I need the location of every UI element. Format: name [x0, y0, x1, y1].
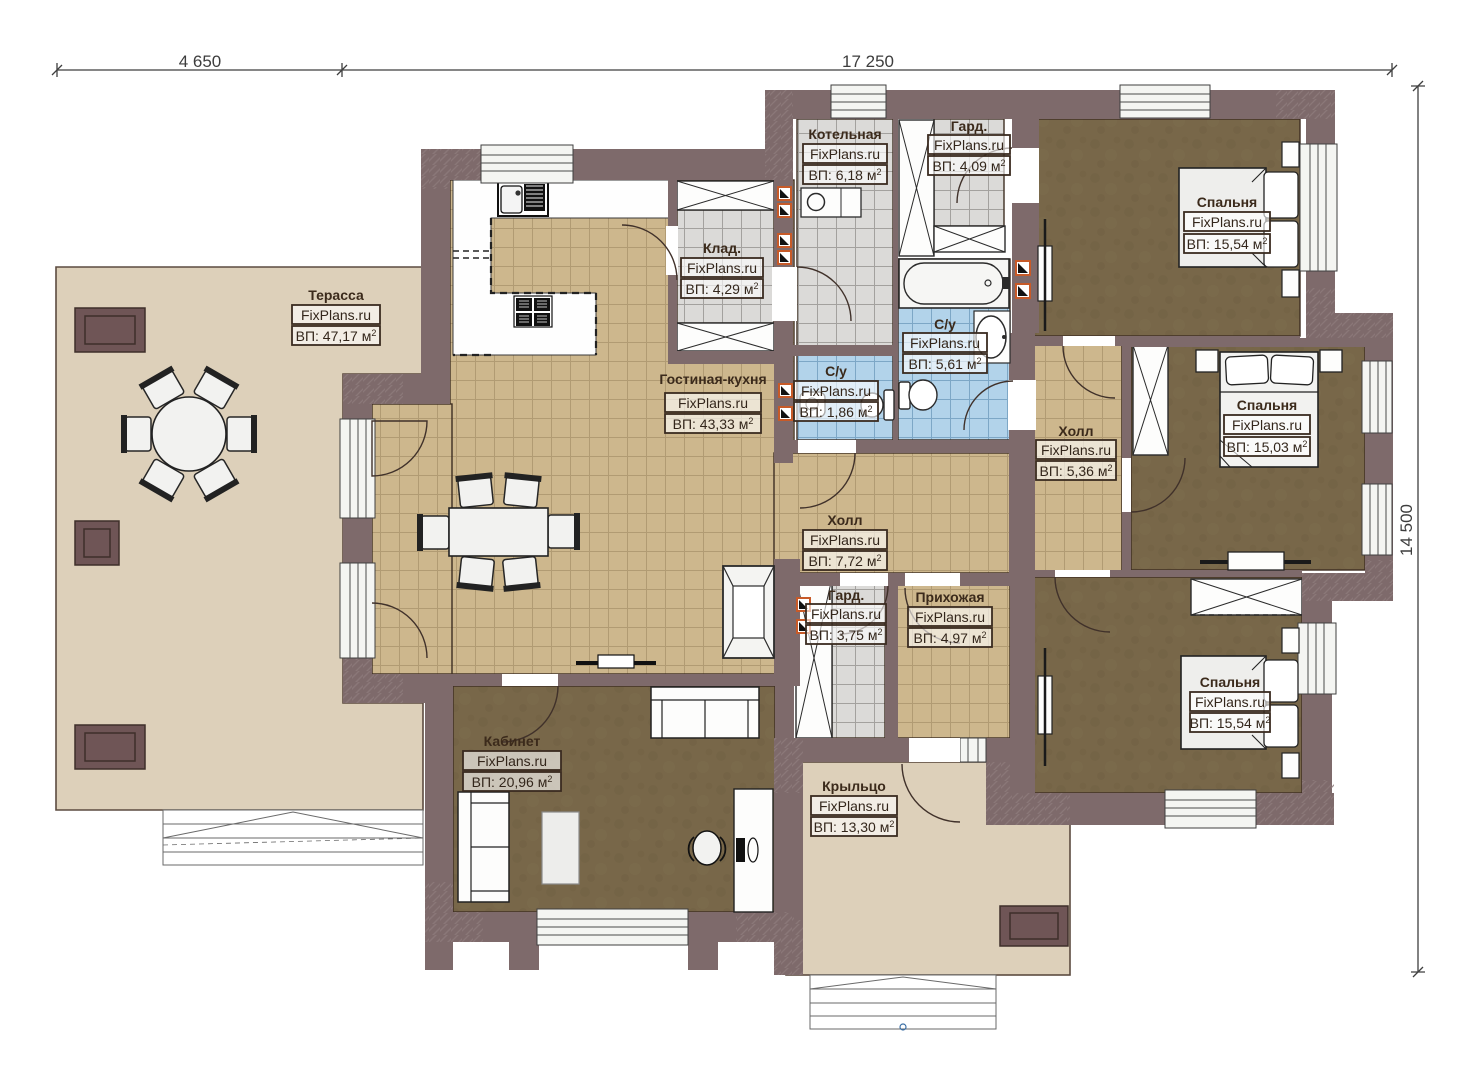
svg-text:ВП: 15,54 м2: ВП: 15,54 м2 — [1187, 236, 1268, 252]
svg-text:ВП: 20,96 м2: ВП: 20,96 м2 — [472, 774, 553, 790]
svg-text:FixPlans.ru: FixPlans.ru — [801, 383, 871, 399]
svg-text:ВП: 4,29 м2: ВП: 4,29 м2 — [686, 281, 759, 297]
svg-text:FixPlans.ru: FixPlans.ru — [811, 606, 881, 622]
svg-text:ВП: 15,54 м2: ВП: 15,54 м2 — [1190, 715, 1271, 731]
svg-text:Клад.: Клад. — [703, 240, 741, 256]
svg-text:ВП: 13,30 м2: ВП: 13,30 м2 — [814, 819, 895, 835]
svg-text:Спальня: Спальня — [1197, 194, 1257, 210]
svg-text:Холл: Холл — [1058, 423, 1093, 439]
svg-text:Спальня: Спальня — [1237, 397, 1297, 413]
svg-text:FixPlans.ru: FixPlans.ru — [678, 395, 748, 411]
svg-text:FixPlans.ru: FixPlans.ru — [810, 146, 880, 162]
svg-text:Терасса: Терасса — [308, 287, 364, 303]
svg-text:FixPlans.ru: FixPlans.ru — [810, 532, 880, 548]
svg-text:ВП: 47,17 м2: ВП: 47,17 м2 — [296, 328, 377, 344]
svg-text:Холл: Холл — [827, 512, 862, 528]
svg-text:ВП: 7,72 м2: ВП: 7,72 м2 — [809, 553, 882, 569]
svg-text:ВП: 5,36 м2: ВП: 5,36 м2 — [1040, 463, 1113, 479]
svg-text:FixPlans.ru: FixPlans.ru — [1232, 417, 1302, 433]
svg-text:FixPlans.ru: FixPlans.ru — [1041, 442, 1111, 458]
svg-text:Крыльцо: Крыльцо — [822, 778, 886, 794]
svg-text:С/у: С/у — [825, 363, 847, 379]
svg-text:Прихожая: Прихожая — [915, 589, 984, 605]
svg-text:Гард.: Гард. — [951, 118, 988, 134]
svg-text:ВП: 43,33 м2: ВП: 43,33 м2 — [673, 416, 754, 432]
svg-text:4 650: 4 650 — [179, 52, 222, 71]
svg-text:Кабинет: Кабинет — [484, 733, 541, 749]
svg-text:FixPlans.ru: FixPlans.ru — [910, 335, 980, 351]
svg-text:Гостиная-кухня: Гостиная-кухня — [659, 371, 766, 387]
svg-text:FixPlans.ru: FixPlans.ru — [1192, 214, 1262, 230]
svg-text:14 500: 14 500 — [1397, 504, 1416, 556]
svg-text:Котельная: Котельная — [808, 126, 881, 142]
svg-text:С/у: С/у — [934, 316, 956, 332]
svg-text:FixPlans.ru: FixPlans.ru — [687, 260, 757, 276]
svg-text:FixPlans.ru: FixPlans.ru — [819, 798, 889, 814]
svg-text:ВП: 4,97 м2: ВП: 4,97 м2 — [914, 630, 987, 646]
svg-text:ВП: 3,75 м2: ВП: 3,75 м2 — [810, 627, 883, 643]
svg-text:FixPlans.ru: FixPlans.ru — [915, 609, 985, 625]
svg-text:ВП: 15,03 м2: ВП: 15,03 м2 — [1227, 439, 1308, 455]
svg-text:ВП: 1,86 м2: ВП: 1,86 м2 — [800, 404, 873, 420]
svg-text:ВП: 6,18 м2: ВП: 6,18 м2 — [809, 167, 882, 183]
svg-text:FixPlans.ru: FixPlans.ru — [301, 307, 371, 323]
svg-text:ВП: 4,09 м2: ВП: 4,09 м2 — [933, 158, 1006, 174]
svg-text:Гард.: Гард. — [828, 587, 865, 603]
svg-text:Спальня: Спальня — [1200, 674, 1260, 690]
svg-text:17 250: 17 250 — [842, 52, 894, 71]
svg-text:ВП: 5,61 м2: ВП: 5,61 м2 — [909, 356, 982, 372]
svg-text:FixPlans.ru: FixPlans.ru — [1195, 694, 1265, 710]
svg-text:FixPlans.ru: FixPlans.ru — [934, 137, 1004, 153]
svg-text:FixPlans.ru: FixPlans.ru — [477, 753, 547, 769]
